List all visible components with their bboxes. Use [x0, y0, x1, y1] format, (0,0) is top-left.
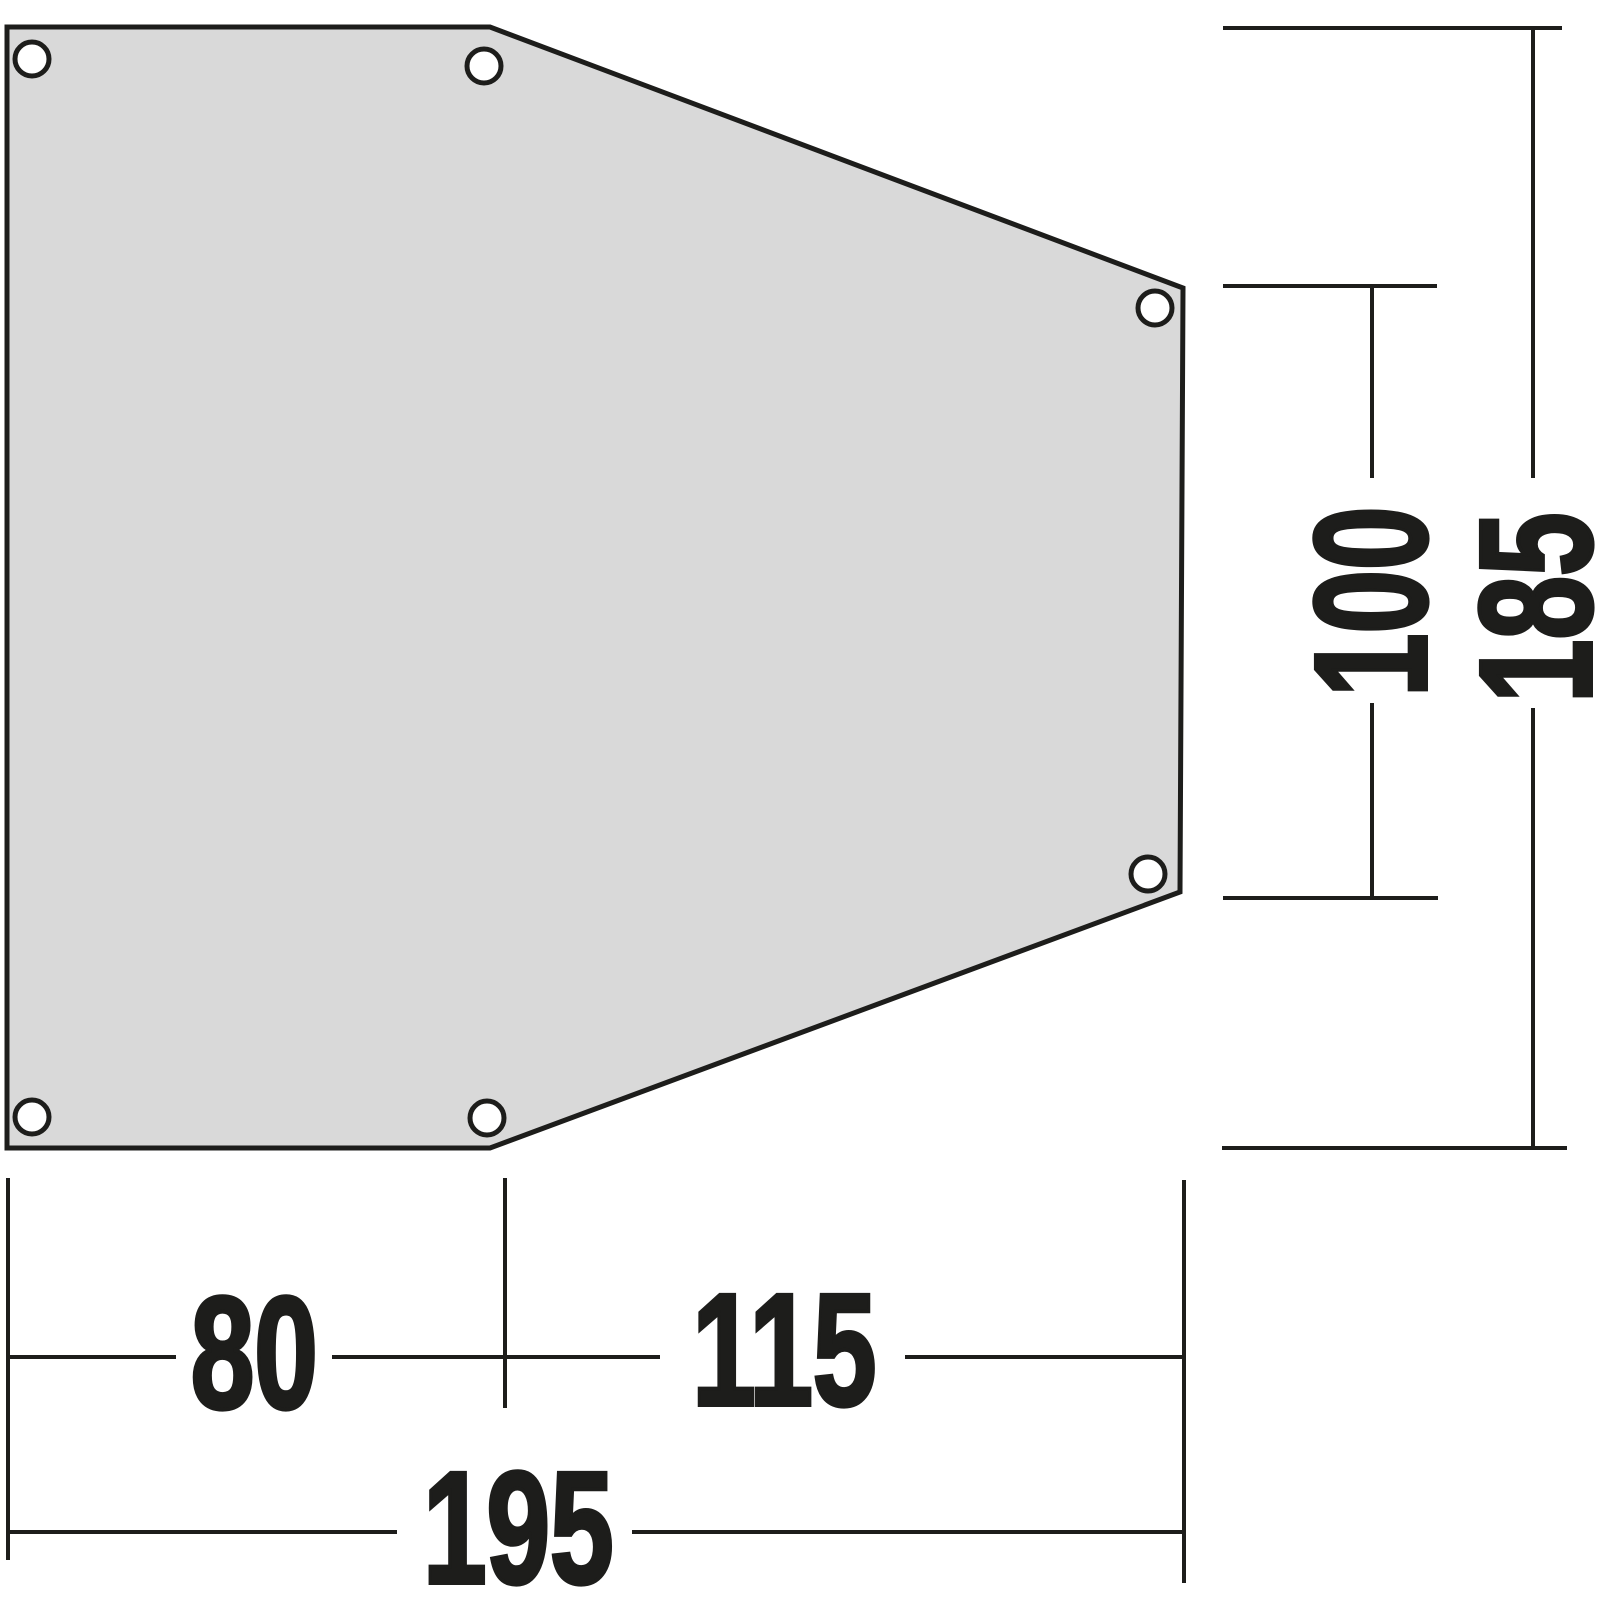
dimension-drawing: 80 115 195 100 185	[0, 0, 1600, 1600]
grommet-icon	[467, 49, 501, 83]
grommet-icon	[470, 1101, 504, 1135]
dimension-label-height-total: 185	[1456, 513, 1600, 703]
dimension-label-height-right-edge: 100	[1291, 507, 1451, 697]
dimension-label-width-right: 115	[692, 1270, 876, 1430]
grommet-icon	[15, 42, 49, 76]
grommet-icon	[15, 1100, 49, 1134]
grommet-icon	[1138, 291, 1172, 325]
footprint-outline	[7, 27, 1183, 1148]
dimension-label-width-total: 195	[423, 1448, 613, 1600]
grommet-icon	[1131, 857, 1165, 891]
dimension-label-width-left: 80	[191, 1273, 318, 1433]
